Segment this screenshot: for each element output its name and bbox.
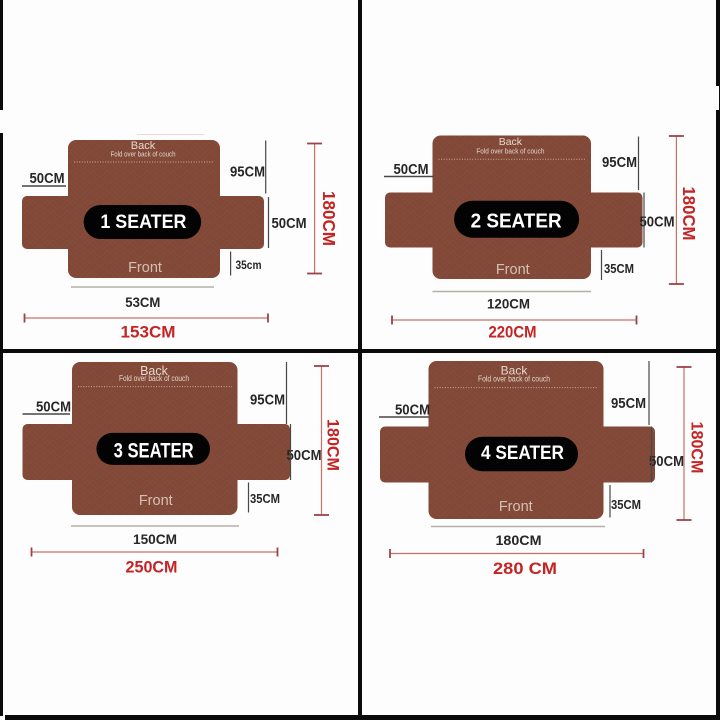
svg-text:50CM: 50CM	[394, 162, 429, 178]
svg-text:180CM: 180CM	[679, 187, 699, 241]
svg-text:Fold over back of couch: Fold over back of couch	[119, 374, 189, 383]
svg-text:50CM: 50CM	[36, 400, 71, 416]
svg-text:Front: Front	[496, 262, 530, 278]
svg-text:1 SEATER: 1 SEATER	[100, 211, 186, 233]
svg-text:220CM: 220CM	[489, 324, 537, 342]
svg-text:Front: Front	[128, 260, 162, 276]
svg-text:50CM: 50CM	[272, 216, 307, 232]
svg-text:150CM: 150CM	[133, 531, 177, 547]
svg-text:153CM: 153CM	[121, 324, 176, 342]
svg-text:95CM: 95CM	[230, 165, 265, 181]
svg-text:50CM: 50CM	[30, 171, 65, 187]
svg-text:50CM: 50CM	[395, 403, 430, 419]
svg-text:50CM: 50CM	[640, 215, 675, 231]
svg-text:35CM: 35CM	[611, 497, 641, 512]
svg-text:250CM: 250CM	[126, 559, 178, 577]
svg-text:180CM: 180CM	[688, 422, 707, 474]
svg-text:Front: Front	[499, 499, 533, 515]
svg-text:180CM: 180CM	[324, 419, 343, 471]
svg-text:Fold over back of couch: Fold over back of couch	[476, 147, 544, 156]
svg-text:280 CM: 280 CM	[493, 559, 557, 578]
svg-text:4 SEATER: 4 SEATER	[481, 443, 564, 464]
svg-text:Fold over back of couch: Fold over back of couch	[111, 149, 176, 158]
svg-text:53CM: 53CM	[125, 294, 160, 310]
svg-text:35cm: 35cm	[236, 258, 262, 272]
svg-text:35CM: 35CM	[250, 491, 280, 506]
svg-text:50CM: 50CM	[649, 454, 684, 470]
svg-text:Fold over back of couch: Fold over back of couch	[478, 374, 550, 383]
svg-text:2 SEATER: 2 SEATER	[471, 210, 562, 233]
svg-text:35CM: 35CM	[604, 261, 634, 276]
svg-text:120CM: 120CM	[487, 296, 530, 312]
svg-text:50CM: 50CM	[287, 448, 322, 464]
svg-text:95CM: 95CM	[250, 393, 285, 409]
svg-text:95CM: 95CM	[602, 155, 637, 171]
svg-text:95CM: 95CM	[611, 396, 646, 412]
svg-text:3 SEATER: 3 SEATER	[114, 440, 194, 463]
svg-text:Front: Front	[139, 493, 173, 509]
svg-text:180CM: 180CM	[496, 532, 542, 548]
svg-text:180CM: 180CM	[319, 191, 339, 246]
